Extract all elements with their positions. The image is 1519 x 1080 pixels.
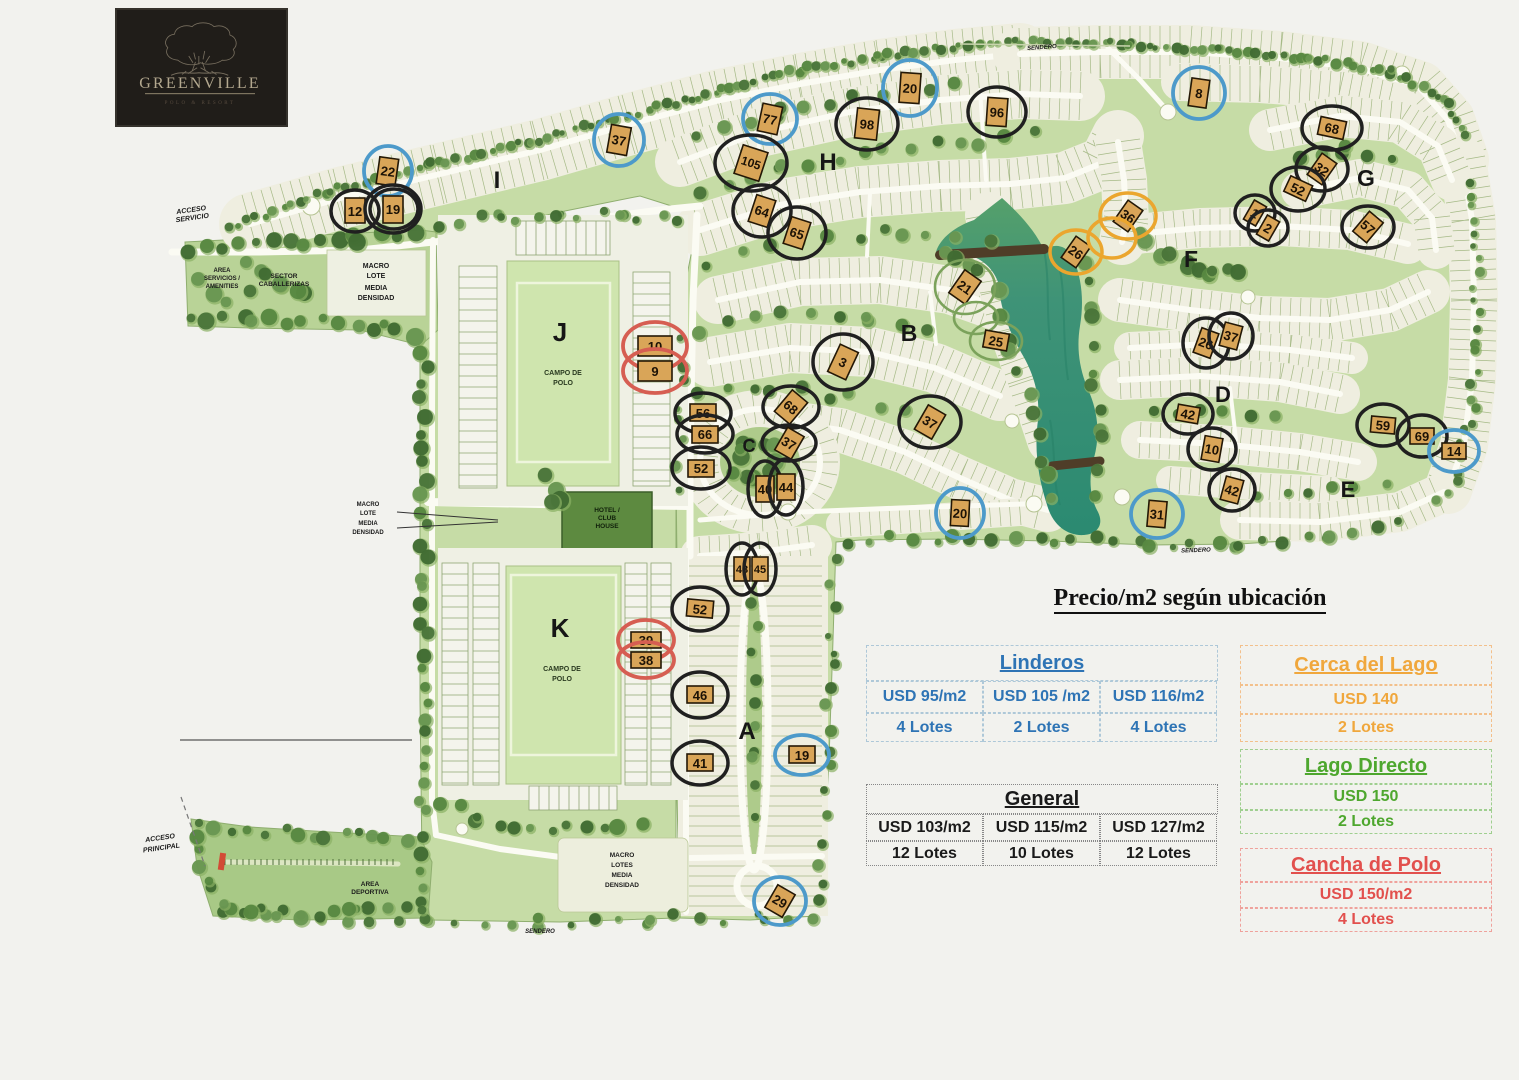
svg-text:68: 68 <box>1323 120 1340 138</box>
svg-text:DENSIDAD: DENSIDAD <box>358 295 395 302</box>
svg-text:POLO: POLO <box>553 380 573 387</box>
svg-text:C: C <box>743 436 756 456</box>
svg-text:G: G <box>1357 165 1375 191</box>
svg-text:10: 10 <box>1203 441 1220 458</box>
svg-text:12: 12 <box>348 204 362 219</box>
svg-text:J: J <box>553 317 567 347</box>
svg-text:52: 52 <box>694 461 708 476</box>
svg-text:CLUB: CLUB <box>598 515 616 522</box>
svg-text:59: 59 <box>1375 417 1391 433</box>
svg-text:46: 46 <box>693 688 707 703</box>
svg-text:9: 9 <box>651 364 658 379</box>
svg-text:B: B <box>901 320 918 346</box>
svg-text:SENDERO: SENDERO <box>1181 547 1211 554</box>
svg-text:LOTES: LOTES <box>611 862 633 869</box>
svg-text:37: 37 <box>610 132 627 149</box>
svg-text:MACRO: MACRO <box>363 263 390 270</box>
svg-text:31: 31 <box>1149 506 1165 522</box>
svg-text:LOTE: LOTE <box>360 511 376 517</box>
svg-text:F: F <box>1184 246 1198 272</box>
svg-text:45: 45 <box>754 564 766 576</box>
svg-text:52: 52 <box>692 601 708 617</box>
svg-text:K: K <box>551 613 570 643</box>
svg-text:DEPORTIVA: DEPORTIVA <box>351 889 389 896</box>
svg-text:H: H <box>819 149 836 176</box>
svg-text:19: 19 <box>386 202 400 217</box>
svg-text:38: 38 <box>639 653 653 668</box>
svg-text:CABALLERIZAS: CABALLERIZAS <box>259 281 310 288</box>
svg-text:77: 77 <box>761 111 778 129</box>
svg-text:SERVICIOS /: SERVICIOS / <box>204 276 240 282</box>
svg-text:POLO: POLO <box>552 676 572 683</box>
svg-text:LOTE: LOTE <box>367 273 386 280</box>
svg-text:98: 98 <box>859 116 875 132</box>
svg-text:GREENVILLE: GREENVILLE <box>139 75 261 92</box>
svg-text:22: 22 <box>380 163 396 180</box>
svg-text:AMENITIES: AMENITIES <box>206 284 239 290</box>
svg-text:AREA: AREA <box>213 268 231 274</box>
svg-text:MACRO: MACRO <box>357 502 380 508</box>
svg-text:CAMPO DE: CAMPO DE <box>544 370 582 377</box>
svg-text:14: 14 <box>1447 444 1462 459</box>
svg-text:E: E <box>1341 477 1356 502</box>
svg-text:AREA: AREA <box>361 881 380 888</box>
svg-text:20: 20 <box>902 81 917 97</box>
svg-text:HOTEL /: HOTEL / <box>594 507 620 514</box>
svg-text:69: 69 <box>1415 429 1429 444</box>
svg-text:MEDIA: MEDIA <box>612 872 633 879</box>
svg-text:42: 42 <box>1179 406 1196 423</box>
svg-text:MEDIA: MEDIA <box>365 285 388 292</box>
svg-text:20: 20 <box>952 506 967 522</box>
svg-text:HOUSE: HOUSE <box>595 523 619 530</box>
svg-text:44: 44 <box>779 480 794 495</box>
svg-text:DENSIDAD: DENSIDAD <box>352 530 384 536</box>
svg-text:19: 19 <box>795 748 809 763</box>
svg-text:66: 66 <box>698 427 712 442</box>
svg-text:41: 41 <box>693 756 707 771</box>
svg-text:10: 10 <box>648 339 662 354</box>
svg-text:D: D <box>1215 382 1231 407</box>
svg-text:A: A <box>738 718 755 745</box>
svg-text:MEDIA: MEDIA <box>358 521 378 527</box>
svg-text:CAMPO DE: CAMPO DE <box>543 666 581 673</box>
svg-text:DENSIDAD: DENSIDAD <box>605 882 639 889</box>
svg-text:MACRO: MACRO <box>610 852 635 859</box>
svg-text:SENDERO: SENDERO <box>525 929 555 935</box>
svg-text:25: 25 <box>987 333 1004 350</box>
svg-text:SECTOR: SECTOR <box>271 273 298 280</box>
svg-text:48: 48 <box>736 564 748 576</box>
svg-text:I: I <box>494 167 501 194</box>
svg-text:POLO & RESORT: POLO & RESORT <box>165 101 236 106</box>
svg-text:96: 96 <box>989 105 1004 121</box>
